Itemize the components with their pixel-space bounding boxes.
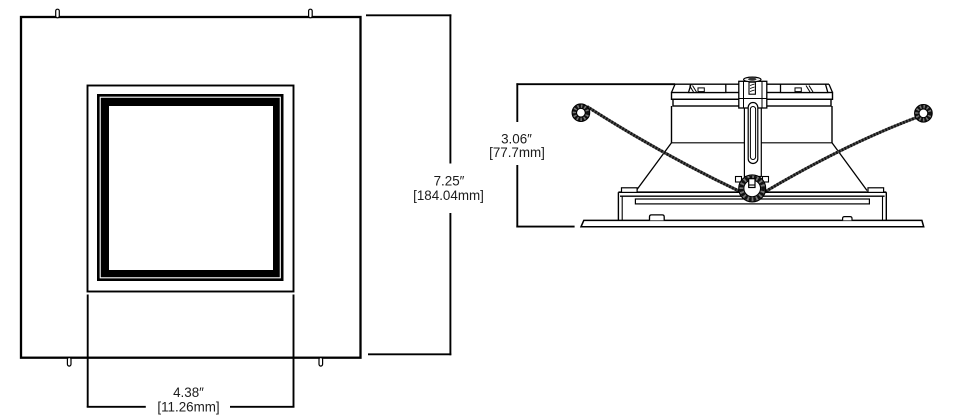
- svg-text:[184.04mm]: [184.04mm]: [413, 188, 484, 203]
- svg-text:4.38″: 4.38″: [173, 385, 204, 400]
- svg-text:[77.7mm]: [77.7mm]: [489, 145, 545, 160]
- svg-text:[11.26mm]: [11.26mm]: [157, 400, 219, 415]
- svg-text:7.25″: 7.25″: [434, 174, 465, 189]
